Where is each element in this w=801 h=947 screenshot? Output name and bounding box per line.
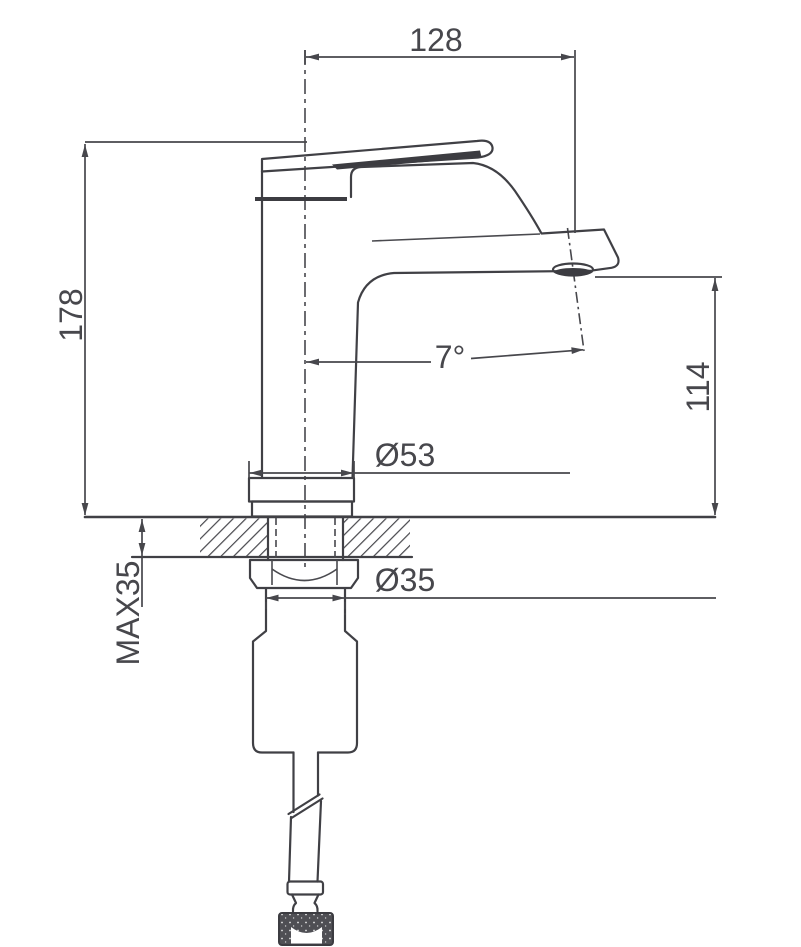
hose-lower-tube — [289, 801, 321, 882]
mounting-nut — [250, 560, 358, 588]
countertop-hatch-left — [200, 519, 267, 557]
overall-height-label: 178 — [53, 288, 89, 341]
lever-slot-shadow — [332, 151, 482, 170]
spout-reach-label: 128 — [409, 22, 462, 58]
dimension-max-counter-thickness: MAX35 — [110, 519, 146, 665]
faucet-dimension-drawing: 128 178 114 7° Ø53 Ø35 — [0, 0, 801, 947]
base-flange — [249, 478, 354, 517]
outlet-tilted-centerline — [568, 228, 585, 351]
supply-hose — [279, 753, 333, 946]
dimension-spout-reach: 128 — [305, 22, 575, 233]
outlet-height-label: 114 — [680, 361, 716, 412]
countertop-section — [85, 517, 715, 561]
hose-crimp-waist — [292, 895, 319, 912]
base-diameter-label: Ø53 — [375, 437, 435, 473]
dimension-base-diameter: Ø53 — [249, 437, 570, 478]
max-counter-thickness-label: MAX35 — [110, 561, 146, 666]
shank-diameter-label: Ø35 — [375, 562, 435, 598]
centerlines — [305, 50, 584, 567]
countertop-hatch-right — [344, 519, 410, 557]
outlet-angle-label: 7° — [435, 339, 466, 375]
faucet-spout — [351, 163, 619, 276]
dimension-outlet-angle: 7° — [306, 339, 584, 375]
drawing-canvas: 128 178 114 7° Ø53 Ø35 — [0, 0, 801, 947]
dimension-outlet-height: 114 — [595, 277, 722, 516]
supply-block — [253, 589, 357, 753]
mounting-hardware — [250, 560, 358, 753]
hose-collar — [288, 882, 324, 895]
spout-crease-line — [372, 234, 540, 241]
aerator-outlet — [555, 268, 592, 276]
